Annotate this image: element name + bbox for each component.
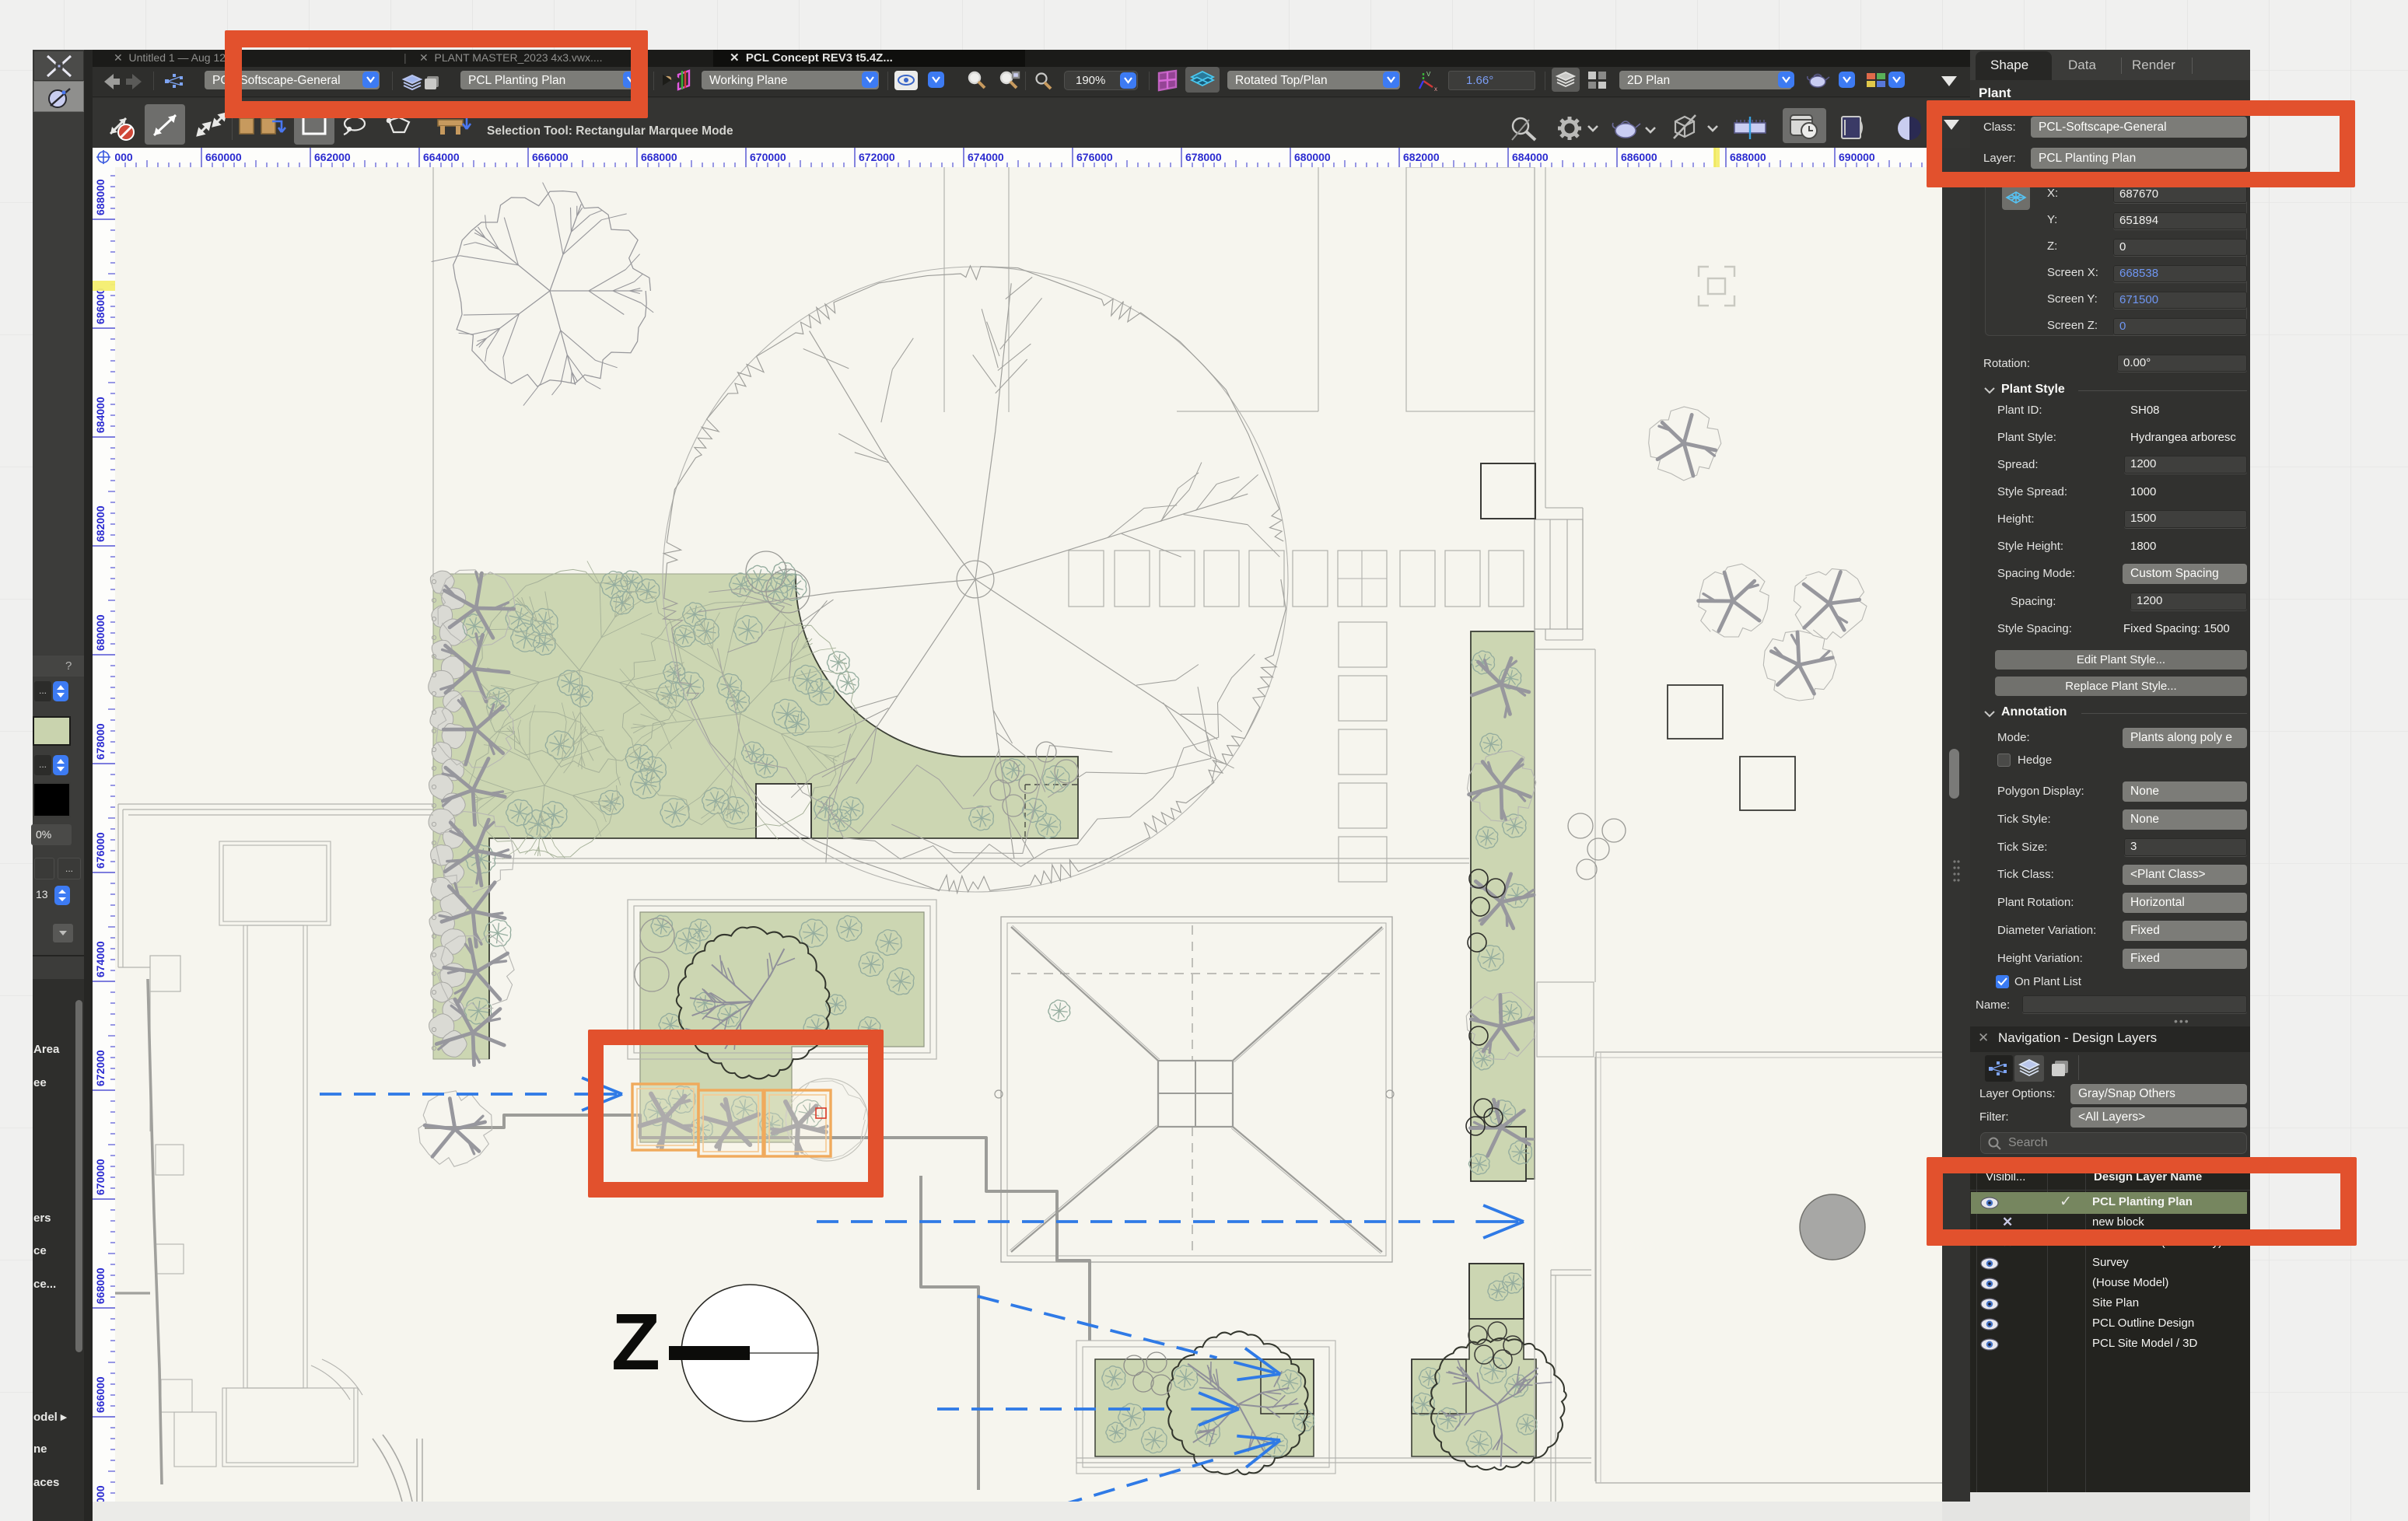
- svg-text:Z: Z: [611, 1297, 660, 1386]
